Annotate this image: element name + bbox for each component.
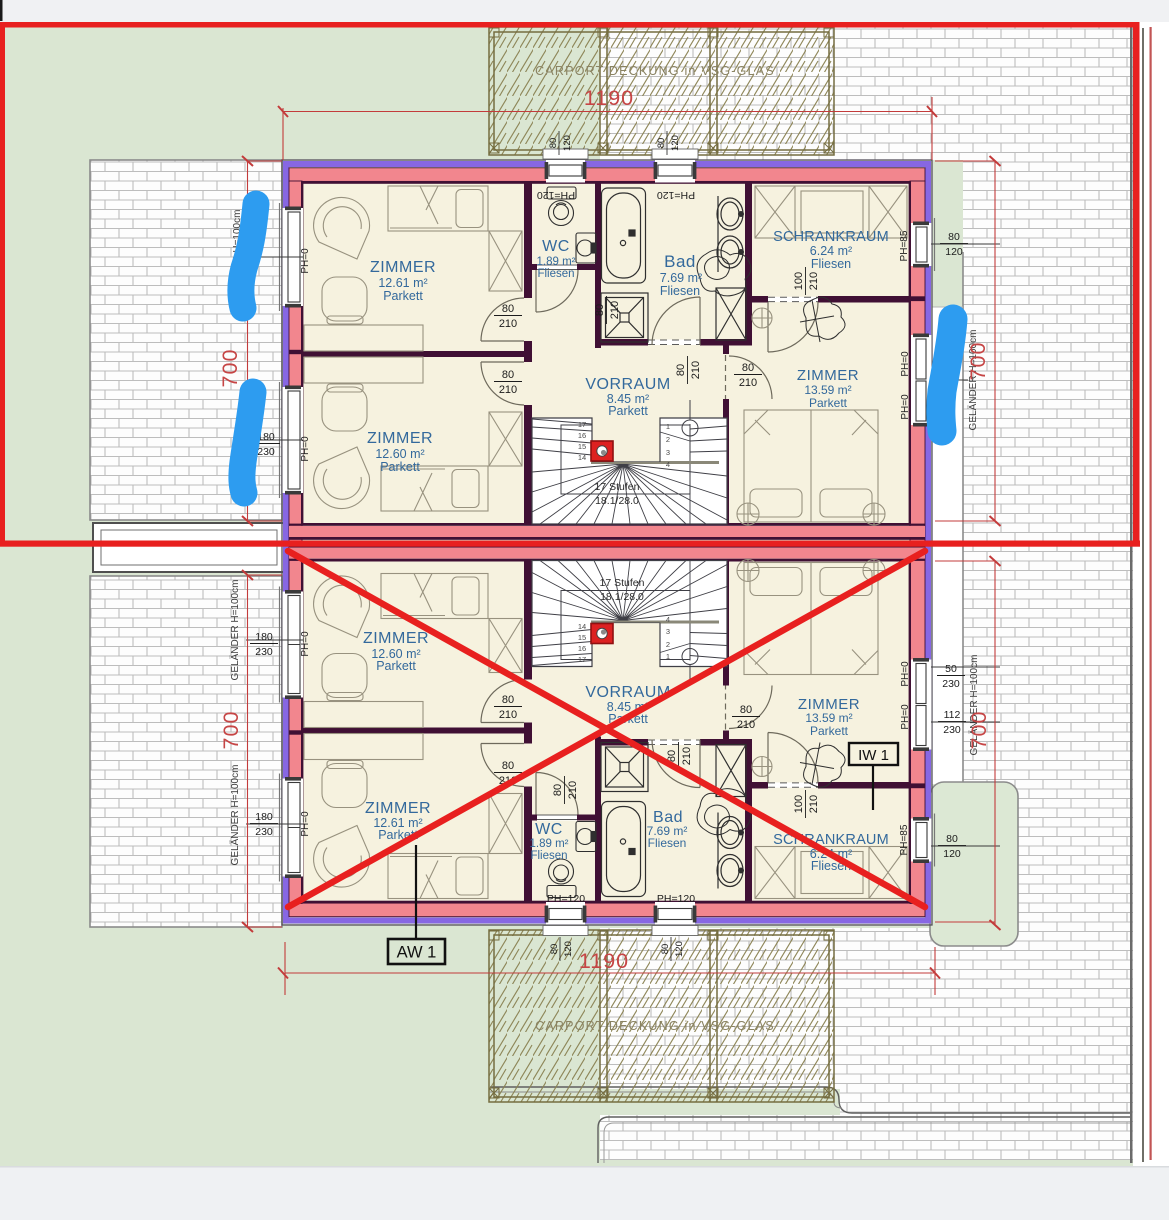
svg-text:Fliesen: Fliesen <box>530 850 567 862</box>
svg-text:SCHRANKRAUM: SCHRANKRAUM <box>773 229 889 245</box>
svg-text:210: 210 <box>739 377 757 389</box>
svg-text:Parkett: Parkett <box>380 460 420 474</box>
svg-text:80: 80 <box>552 784 564 796</box>
svg-text:80: 80 <box>948 231 960 243</box>
svg-text:120: 120 <box>943 848 961 860</box>
svg-text:Fliesen: Fliesen <box>648 836 687 850</box>
svg-text:WC: WC <box>542 238 570 255</box>
svg-text:210: 210 <box>609 301 621 319</box>
svg-text:180: 180 <box>255 631 273 643</box>
svg-text:13.59 m²: 13.59 m² <box>805 711 852 725</box>
svg-text:2: 2 <box>666 435 670 444</box>
svg-text:AW 1: AW 1 <box>397 944 437 962</box>
svg-text:1190: 1190 <box>584 86 634 110</box>
svg-text:PH=0: PH=0 <box>900 394 911 420</box>
svg-text:230: 230 <box>255 646 273 658</box>
svg-text:100: 100 <box>793 272 805 290</box>
svg-text:210: 210 <box>808 272 820 290</box>
svg-text:17 Stufen: 17 Stufen <box>595 481 640 493</box>
svg-text:Parkett: Parkett <box>809 396 848 410</box>
svg-text:13.59 m²: 13.59 m² <box>804 383 851 397</box>
svg-text:1.89 m²: 1.89 m² <box>530 838 569 850</box>
svg-text:15: 15 <box>578 633 586 642</box>
svg-text:210: 210 <box>808 795 820 813</box>
svg-text:210: 210 <box>499 384 517 396</box>
svg-text:120: 120 <box>674 941 685 957</box>
svg-text:PH=0: PH=0 <box>300 631 311 657</box>
svg-text:230: 230 <box>257 446 275 458</box>
svg-text:Bad: Bad <box>664 252 696 271</box>
svg-text:120: 120 <box>670 135 681 151</box>
svg-text:210: 210 <box>499 709 517 721</box>
svg-text:80: 80 <box>946 833 958 845</box>
svg-text:80: 80 <box>675 364 687 376</box>
svg-text:700: 700 <box>967 711 991 750</box>
svg-text:80: 80 <box>502 694 514 706</box>
svg-text:CARPORT DECKUNG in VSG-GLAS: CARPORT DECKUNG in VSG-GLAS <box>535 64 775 78</box>
svg-text:Fliesen: Fliesen <box>537 268 574 280</box>
svg-text:700: 700 <box>218 349 242 388</box>
svg-text:4: 4 <box>666 615 670 624</box>
svg-text:Fliesen: Fliesen <box>660 284 700 298</box>
svg-text:80: 80 <box>740 704 752 716</box>
svg-text:Parkett: Parkett <box>383 289 423 303</box>
svg-text:GELÄNDER H=100cm: GELÄNDER H=100cm <box>229 765 241 866</box>
svg-text:210: 210 <box>567 781 579 799</box>
svg-text:6.24 m²: 6.24 m² <box>810 244 852 258</box>
svg-text:PH=0: PH=0 <box>900 704 911 730</box>
svg-text:80: 80 <box>502 760 514 772</box>
svg-text:1: 1 <box>666 652 670 661</box>
svg-text:120: 120 <box>563 941 574 957</box>
svg-text:PH=120: PH=120 <box>657 189 695 201</box>
svg-text:80: 80 <box>660 944 671 955</box>
svg-text:112: 112 <box>944 709 961 721</box>
svg-text:210: 210 <box>737 719 755 731</box>
svg-text:2: 2 <box>666 640 670 649</box>
svg-text:17: 17 <box>578 420 586 429</box>
svg-text:PH=120: PH=120 <box>537 189 575 201</box>
svg-text:7.69 m²: 7.69 m² <box>660 271 702 285</box>
svg-text:Parkett: Parkett <box>376 659 416 673</box>
svg-text:CARPORT DECKUNG in VSG-GLAS: CARPORT DECKUNG in VSG-GLAS <box>535 1019 775 1033</box>
svg-text:12.61 m²: 12.61 m² <box>378 276 427 290</box>
svg-text:WC: WC <box>535 821 563 838</box>
svg-text:700: 700 <box>966 342 990 381</box>
svg-text:180: 180 <box>255 811 273 823</box>
svg-text:GELÄNDER H=100cm: GELÄNDER H=100cm <box>229 580 241 681</box>
svg-text:14: 14 <box>578 622 586 631</box>
svg-text:80: 80 <box>548 138 559 149</box>
svg-text:80: 80 <box>656 138 667 149</box>
svg-text:230: 230 <box>943 724 961 736</box>
svg-text:12.60 m²: 12.60 m² <box>375 447 424 461</box>
svg-text:14: 14 <box>578 453 586 462</box>
svg-text:18.1/28.0: 18.1/28.0 <box>595 495 639 507</box>
svg-text:17: 17 <box>578 655 586 664</box>
svg-text:Parkett: Parkett <box>608 404 648 418</box>
svg-text:PH=85: PH=85 <box>899 230 910 261</box>
svg-text:1: 1 <box>666 422 670 431</box>
svg-text:1190: 1190 <box>579 949 629 973</box>
svg-text:80: 80 <box>594 304 606 316</box>
svg-text:210: 210 <box>681 747 693 765</box>
svg-text:80: 80 <box>502 303 514 315</box>
svg-text:VORRAUM: VORRAUM <box>585 376 670 393</box>
svg-text:210: 210 <box>690 361 702 379</box>
svg-text:16: 16 <box>578 431 586 440</box>
svg-text:PH=0: PH=0 <box>900 661 911 687</box>
svg-text:700: 700 <box>219 711 243 750</box>
svg-text:16: 16 <box>578 644 586 653</box>
svg-text:1.89 m²: 1.89 m² <box>537 256 576 268</box>
svg-text:50: 50 <box>945 663 957 675</box>
svg-text:ZIMMER: ZIMMER <box>370 259 436 276</box>
svg-text:100: 100 <box>793 795 805 813</box>
svg-text:PH=0: PH=0 <box>900 351 911 377</box>
svg-text:15: 15 <box>578 442 586 451</box>
svg-text:ZIMMER: ZIMMER <box>363 630 429 647</box>
svg-text:4: 4 <box>666 460 670 469</box>
svg-text:17 Stufen: 17 Stufen <box>600 577 645 589</box>
svg-text:230: 230 <box>255 826 273 838</box>
svg-text:ZIMMER: ZIMMER <box>367 430 433 447</box>
svg-text:PH=0: PH=0 <box>300 248 311 274</box>
svg-text:Parkett: Parkett <box>810 724 849 738</box>
svg-text:PH=85: PH=85 <box>899 824 910 855</box>
svg-text:ZIMMER: ZIMMER <box>365 800 431 817</box>
svg-text:PH=120: PH=120 <box>657 893 695 905</box>
svg-text:PH=120: PH=120 <box>547 893 585 905</box>
svg-text:IW 1: IW 1 <box>858 747 889 764</box>
svg-text:210: 210 <box>499 318 517 330</box>
svg-text:ZIMMER: ZIMMER <box>797 367 859 384</box>
svg-text:80: 80 <box>549 944 560 955</box>
svg-text:230: 230 <box>942 678 960 690</box>
svg-text:3: 3 <box>666 627 670 636</box>
svg-text:80: 80 <box>502 369 514 381</box>
svg-text:80: 80 <box>742 362 754 374</box>
svg-text:Fliesen: Fliesen <box>811 257 851 271</box>
svg-text:18.1/28.0: 18.1/28.0 <box>600 591 644 603</box>
svg-text:120: 120 <box>562 135 573 151</box>
svg-text:120: 120 <box>945 246 963 258</box>
svg-text:3: 3 <box>666 448 670 457</box>
